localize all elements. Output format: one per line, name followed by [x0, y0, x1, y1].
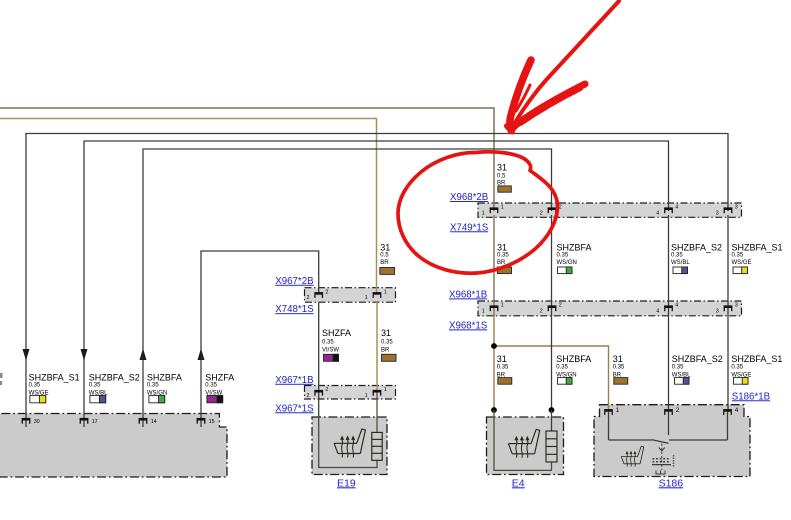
svg-text:0.5: 0.5 [497, 173, 506, 179]
svg-text:0.35: 0.35 [205, 382, 217, 388]
svg-text:2: 2 [540, 308, 543, 314]
svg-text:SHZBFA_S1: SHZBFA_S1 [29, 373, 80, 383]
svg-text:X749*1S: X749*1S [450, 222, 489, 233]
svg-text:31: 31 [380, 243, 390, 253]
svg-text:0.35: 0.35 [381, 339, 393, 345]
svg-text:1: 1 [365, 393, 368, 399]
svg-text:3: 3 [716, 210, 719, 216]
svg-text:4: 4 [675, 205, 678, 211]
svg-text:1: 1 [501, 303, 504, 309]
svg-text:0.35: 0.35 [731, 365, 743, 371]
svg-text:31: 31 [613, 354, 623, 364]
svg-text:0.35: 0.35 [613, 365, 625, 371]
svg-text:SHZFA: SHZFA [322, 328, 351, 338]
svg-text:2: 2 [325, 387, 328, 393]
svg-text:1: 1 [482, 210, 485, 216]
svg-text:SHZFA: SHZFA [205, 373, 234, 383]
svg-text:2: 2 [325, 289, 328, 295]
svg-text:SHZBFA_S2: SHZBFA_S2 [89, 373, 140, 383]
svg-text:X968*1S: X968*1S [449, 320, 488, 331]
svg-text:4: 4 [656, 308, 659, 314]
svg-text:X967*1B: X967*1B [275, 375, 313, 386]
svg-text:2: 2 [307, 393, 310, 399]
svg-text:WS/BL: WS/BL [671, 260, 690, 266]
svg-text:4: 4 [735, 407, 739, 414]
svg-text:BR: BR [381, 348, 390, 354]
svg-text:VI/SW: VI/SW [322, 348, 339, 354]
svg-text:X968*2B: X968*2B [450, 192, 488, 203]
svg-text:BR: BR [380, 260, 389, 266]
svg-text:0.35: 0.35 [732, 252, 744, 258]
svg-text:0.35: 0.35 [497, 252, 509, 258]
svg-text:0.35: 0.35 [671, 252, 683, 258]
svg-text:4: 4 [675, 303, 678, 309]
svg-text:SHZBFA_S1: SHZBFA_S1 [732, 243, 783, 253]
svg-text:X967*1S: X967*1S [275, 403, 314, 414]
svg-text:1: 1 [365, 295, 368, 301]
svg-text:X968*1B: X968*1B [449, 289, 487, 300]
svg-text:SHZBFA_S1: SHZBFA_S1 [731, 354, 782, 364]
svg-text:E19: E19 [337, 477, 356, 489]
svg-text:14: 14 [151, 419, 157, 425]
svg-text:1: 1 [616, 407, 620, 414]
svg-text:3: 3 [735, 205, 738, 211]
svg-text:2: 2 [676, 407, 680, 414]
svg-text:0.35: 0.35 [89, 382, 101, 388]
svg-text:1: 1 [501, 205, 504, 211]
svg-text:4: 4 [656, 210, 659, 216]
svg-text:E4: E4 [512, 477, 525, 489]
svg-text:X967*2B: X967*2B [275, 276, 313, 287]
svg-text:SHZBFA: SHZBFA [147, 373, 182, 383]
svg-text:0.35: 0.35 [672, 365, 684, 371]
svg-text:SHZBFA_S2: SHZBFA_S2 [671, 243, 722, 253]
svg-text:0.35: 0.35 [322, 339, 334, 345]
svg-text:2: 2 [559, 303, 562, 309]
svg-text:31: 31 [497, 243, 507, 253]
svg-text:SHZBFA_S2: SHZBFA_S2 [672, 354, 723, 364]
svg-text:SHZBFA: SHZBFA [557, 243, 592, 253]
svg-text:1: 1 [482, 308, 485, 314]
svg-text:S186: S186 [659, 477, 684, 489]
svg-text:0.35: 0.35 [147, 382, 159, 388]
svg-text:0.5: 0.5 [380, 252, 389, 258]
svg-text:31: 31 [497, 354, 507, 364]
svg-text:17: 17 [92, 419, 98, 425]
svg-text:1: 1 [384, 289, 387, 295]
svg-text:3: 3 [735, 303, 738, 309]
svg-text:15: 15 [209, 419, 215, 425]
svg-text:30: 30 [34, 419, 40, 425]
svg-text:WS/GN: WS/GN [557, 260, 577, 266]
svg-text:2: 2 [307, 295, 310, 301]
svg-text:1: 1 [384, 387, 387, 393]
svg-text:S186*1B: S186*1B [732, 391, 770, 402]
svg-text:0.35: 0.35 [557, 252, 569, 258]
svg-text:31: 31 [381, 328, 391, 338]
svg-text:X748*1S: X748*1S [275, 304, 314, 315]
svg-text:2: 2 [540, 210, 543, 216]
svg-text:31: 31 [497, 162, 507, 172]
svg-text:WS/GE: WS/GE [732, 260, 752, 266]
svg-text:0.35: 0.35 [556, 365, 568, 371]
svg-text:0.35: 0.35 [29, 382, 41, 388]
svg-text:SHZBFA: SHZBFA [556, 354, 591, 364]
svg-text:3: 3 [716, 308, 719, 314]
svg-text:0.35: 0.35 [497, 365, 509, 371]
svg-text:BR: BR [497, 180, 506, 186]
